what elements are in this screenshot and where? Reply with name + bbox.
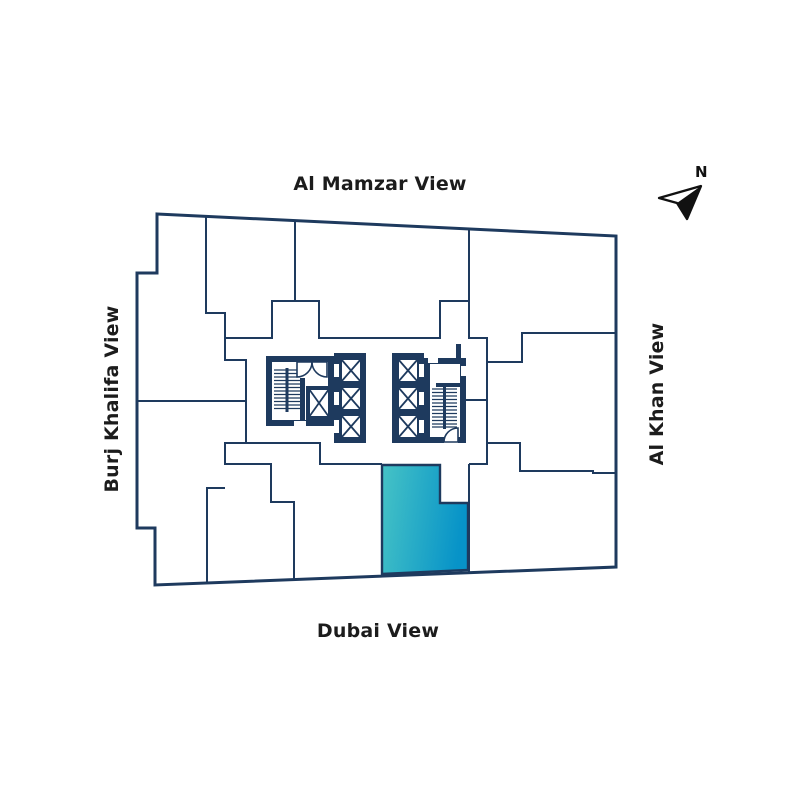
elevator-icon: [306, 386, 332, 420]
door-opening: [294, 421, 306, 426]
elevator-icon: [398, 387, 418, 410]
elevator-icon: [341, 359, 361, 382]
door-opening: [334, 364, 339, 377]
door-opening: [334, 420, 339, 433]
door-opening: [419, 392, 424, 405]
core-right-inner-wall: [436, 383, 460, 387]
compass-north-label: N: [695, 163, 708, 181]
elevator-icon: [341, 387, 361, 410]
elevator-icon: [398, 415, 418, 438]
door-opening: [419, 420, 424, 433]
floorplan-page: Al Mamzar View Dubai View Burj Khalifa V…: [0, 0, 801, 800]
floorplan-svg: Al Mamzar View Dubai View Burj Khalifa V…: [0, 0, 801, 800]
view-label-top: Al Mamzar View: [293, 173, 466, 195]
door-opening: [428, 358, 438, 363]
door-opening: [461, 366, 466, 376]
door-opening: [334, 392, 339, 405]
view-label-right: Al Khan View: [646, 323, 668, 466]
view-label-bottom: Dubai View: [317, 620, 439, 642]
north-arrow-icon: N: [659, 163, 708, 219]
core-left-inner-wall: [300, 378, 305, 420]
elevator-icon: [341, 415, 361, 438]
plate-outer-boundary: [137, 214, 616, 585]
view-label-left: Burj Khalifa View: [101, 305, 123, 492]
core-right: [392, 344, 466, 443]
core-right-wall-stub: [456, 344, 461, 360]
door-opening: [419, 364, 424, 377]
elevator-icon: [398, 359, 418, 382]
